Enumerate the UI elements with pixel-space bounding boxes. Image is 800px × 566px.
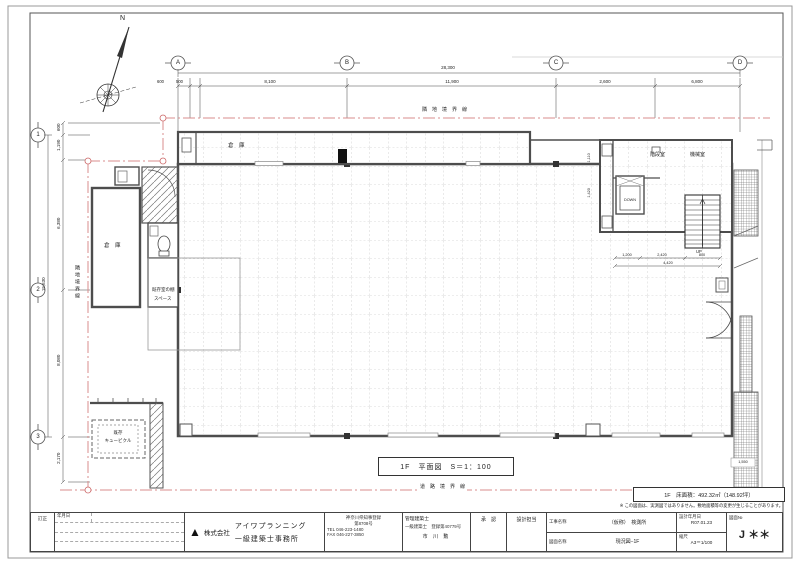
approval-cell: 承 認	[471, 513, 507, 551]
scale-value: A3＝1/100	[679, 540, 724, 546]
grid-col-d: D	[733, 60, 747, 67]
room-storage-top-label: 倉 庫	[228, 143, 245, 149]
architect-cell: 管理建築士 一級建築士 登録第40779号 市 川 勲	[403, 513, 471, 551]
drawing-number-label: 図面№	[729, 515, 743, 521]
designer-cell: 設計担当	[507, 513, 547, 551]
elevator-label: DOWN	[618, 198, 642, 202]
project-value: （仮称） 検測所	[579, 519, 676, 526]
dim-top-2: 500	[176, 80, 183, 85]
boundary-bottom-label: 道 路 境 界 線	[418, 485, 467, 491]
grid-col-a: A	[171, 60, 185, 67]
boundary-top-label: 隣 地 境 界 線	[420, 108, 469, 114]
dim-stair-total: 4,420	[655, 261, 681, 265]
drawing-number-value: J ＊＊	[727, 526, 782, 542]
staircase	[685, 195, 720, 248]
grid-row-1: 1	[31, 132, 45, 139]
dim-top-4: 11,900	[430, 80, 474, 85]
date-scale-cell: 設計年月日 R07.01.23 縮尺 A3＝1/100	[677, 513, 727, 551]
company-logo-icon: ▲	[189, 526, 201, 538]
revision-column: 訂正	[31, 513, 55, 551]
dim-slope: 1,550	[732, 460, 754, 464]
dim-top-3: 8,100	[250, 80, 290, 85]
drawing-label: 図面名称	[547, 539, 579, 545]
dim-left-2: 1,190	[57, 132, 62, 158]
company-prefix: 株式会社	[204, 527, 230, 537]
dim-top-1: 600	[157, 80, 164, 85]
drawing-value: 現況図−1F	[579, 538, 676, 545]
plan-title-box: 1F 平面図 S＝1：100	[378, 457, 514, 476]
shelf-space-label-1: 既存室の棚	[150, 288, 177, 293]
cubicle-label-1: 既存	[99, 431, 137, 436]
drawing-sheet: N A B C D 1 2 3 28,300 600 500 8,100 11,…	[0, 0, 800, 566]
registration-cell: 神奈川県知事登録 第8708号 TEL 046-223-1480 FAX 046…	[325, 513, 403, 551]
entry-slope-hatch	[142, 167, 178, 223]
dim-left-4: 8,080	[57, 347, 62, 373]
dim-left-5: 2,170	[57, 445, 62, 471]
project-label: 工事名称	[547, 519, 579, 525]
company-subtitle: 一級建築士事務所	[235, 534, 307, 544]
fax-line: FAX 046-227-3850	[327, 532, 400, 537]
dim-stair-3: 800	[692, 253, 712, 257]
revision-table: 年月日	[55, 513, 185, 551]
grid-col-c: C	[549, 60, 563, 67]
elevator-shaft	[616, 176, 644, 214]
dim-ev-2: 1,420	[588, 180, 592, 206]
dim-ev-1: 1,110	[588, 145, 592, 171]
grid-col-b: B	[340, 60, 354, 67]
revision-label: 訂正	[38, 516, 47, 522]
company-cell: ▲ 株式会社 アイワプランニング 一級建築士事務所	[185, 513, 325, 551]
dim-top-total: 28,300	[428, 66, 468, 71]
title-block: 訂正 年月日 ▲ 株式会社 アイワプランニング 一級建築士事務所 神奈川県知事登…	[30, 512, 783, 552]
floor-area-text: 1F 床面積：492.32㎡（148.92坪）	[664, 491, 754, 499]
disclaimer-note: ※ この図面は、実測図ではありません。敷地面積等の変更が生じることがあります。	[575, 504, 783, 509]
manager-name: 市 川 勲	[405, 533, 468, 540]
toilet	[148, 223, 178, 258]
grid-row-3: 3	[31, 434, 45, 441]
room-machine-label: 機械室	[688, 153, 707, 159]
date-value: R07.01.23	[679, 520, 724, 525]
plan-title: 1F 平面図 S＝1：100	[400, 462, 491, 472]
dim-stair-2: 2,420	[650, 253, 674, 257]
north-label: N	[120, 15, 125, 23]
north-compass	[80, 27, 136, 112]
shelf-space-label-2: スペース	[152, 297, 173, 302]
dim-left-total: 15,630	[42, 271, 47, 297]
cubicle-label-2: キュービクル	[99, 439, 137, 444]
manager-license: 一級建築士 登録第40779号	[405, 524, 468, 530]
dim-top-6: 6,800	[677, 80, 717, 85]
revision-date-header: 年月日	[55, 513, 92, 522]
floor-area-box: 1F 床面積：492.32㎡（148.92坪）	[633, 487, 785, 502]
names-cell: 工事名称 （仮称） 検測所 図面名称 現況図−1F	[547, 513, 677, 551]
dim-top-5: 2,600	[585, 80, 625, 85]
company-name: アイワプランニング	[235, 521, 307, 531]
room-storage-left-label: 倉 庫	[104, 243, 121, 249]
dim-left-3: 6,380	[57, 210, 62, 236]
approval-header: 承 認	[471, 516, 506, 523]
top-dimensions	[176, 69, 742, 132]
manager-title: 管理建築士	[405, 515, 468, 522]
designer-header: 設計担当	[507, 516, 546, 523]
drawing-number-cell: 図面№ J ＊＊	[727, 513, 782, 551]
room-stair-label: 階段室	[648, 153, 667, 159]
boundary-left-label: 隣地境界線	[74, 265, 81, 300]
dim-stair-1: 1,200	[615, 253, 639, 257]
